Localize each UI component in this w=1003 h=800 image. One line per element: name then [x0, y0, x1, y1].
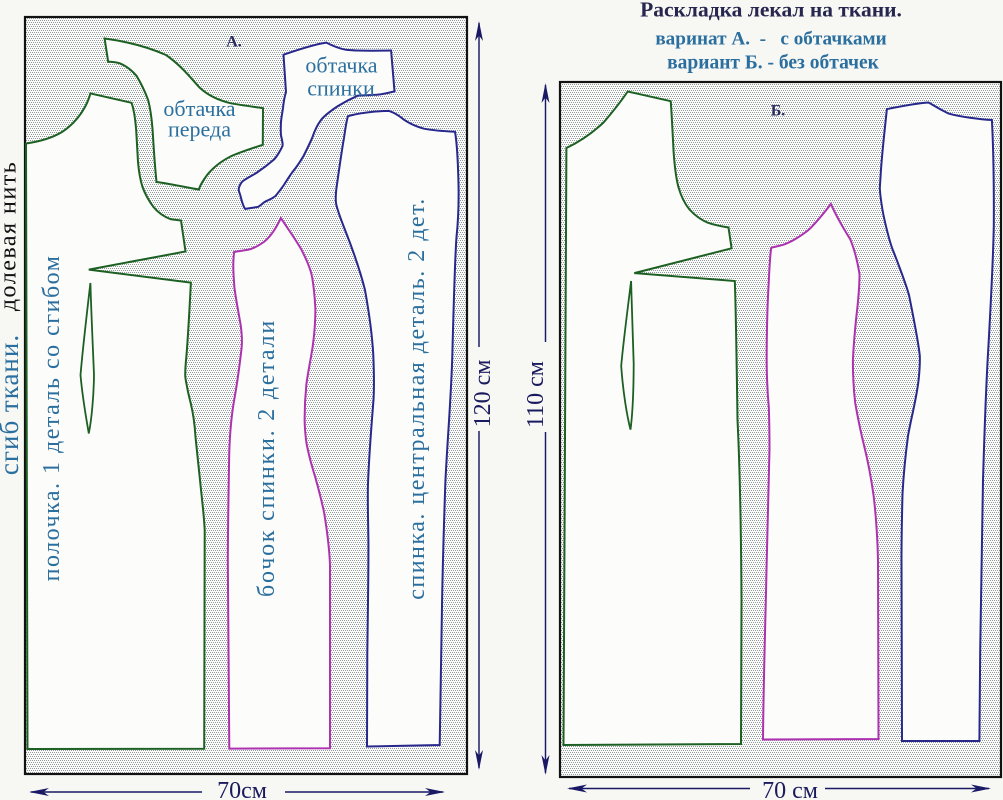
svg-text:120 см: 120 см	[470, 360, 496, 428]
svg-text:варинат А. - с обтачками: варинат А. - с обтачками	[655, 29, 886, 50]
svg-text:обтачка: обтачка	[305, 53, 377, 78]
svg-text:вариант Б. - без обтачек: вариант Б. - без обтачек	[667, 53, 880, 74]
svg-text:сгиб ткани.: сгиб ткани.	[0, 334, 24, 475]
svg-text:бочок спинки. 2 детали: бочок спинки. 2 детали	[254, 319, 280, 597]
svg-text:70см: 70см	[217, 778, 267, 800]
svg-text:спинка. центральная деталь. 2: спинка. центральная деталь. 2 дет.	[404, 197, 430, 600]
svg-text:долевая нить: долевая нить	[0, 161, 22, 311]
svg-text:70 см: 70 см	[762, 778, 818, 800]
svg-text:спинки: спинки	[307, 76, 375, 101]
svg-text:110 см: 110 см	[523, 361, 549, 428]
svg-text:А.: А.	[226, 34, 242, 51]
svg-text:переда: переда	[168, 117, 231, 142]
svg-text:полочка. 1 деталь со сгибом: полочка. 1 деталь со сгибом	[39, 255, 65, 582]
svg-text:Раскладка лекал на ткани.: Раскладка лекал на ткани.	[640, 0, 902, 22]
svg-text:Б.: Б.	[771, 103, 786, 120]
